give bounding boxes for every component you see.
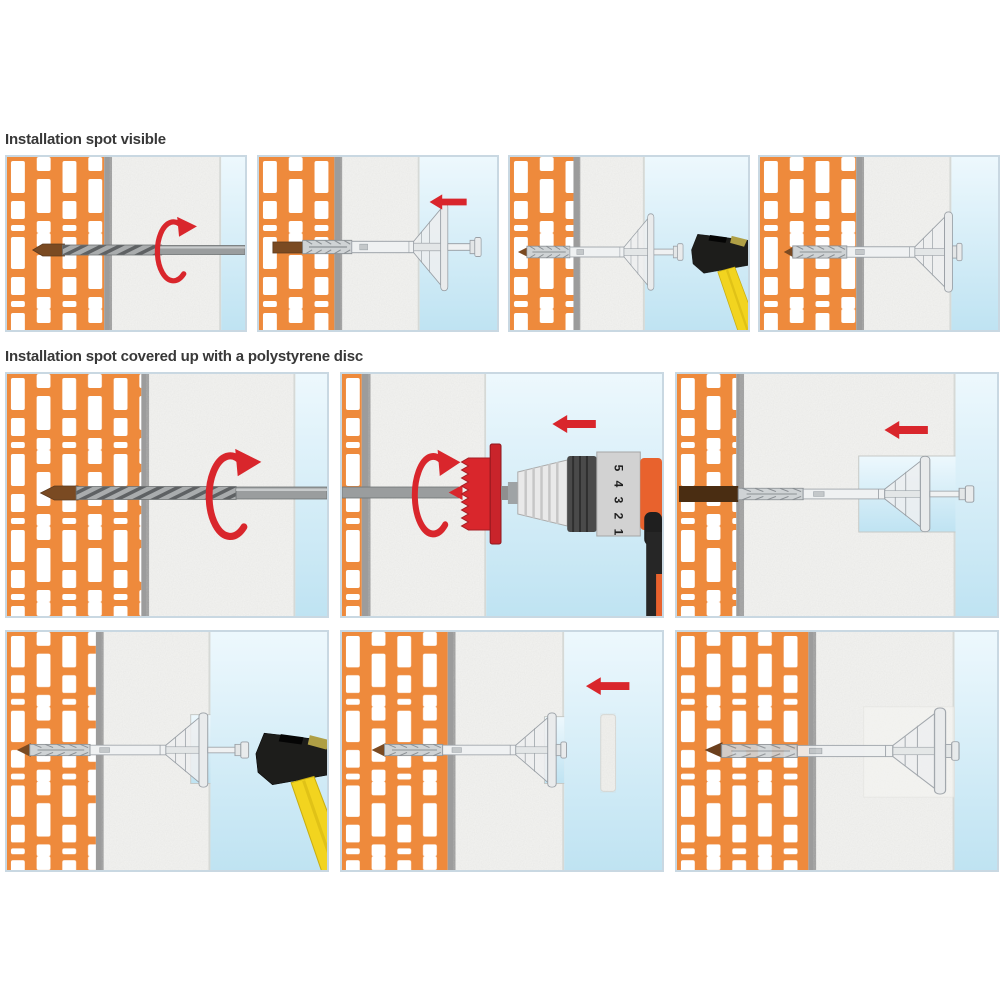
drilled-hole xyxy=(273,242,307,253)
adhesive-layer xyxy=(856,157,864,330)
scene-hammer-pin xyxy=(510,157,748,330)
scene-finished-covered xyxy=(677,632,997,870)
scene-insert-recessed xyxy=(677,374,997,616)
scene-hammer-recessed xyxy=(7,632,327,870)
brick-wall xyxy=(510,157,573,330)
insulation-board xyxy=(112,157,221,330)
cutter-guide-rod xyxy=(342,487,459,498)
clutch-number: 1 xyxy=(612,529,626,536)
air-gap xyxy=(955,632,997,870)
panel-insert-anchor-recessed xyxy=(675,372,999,618)
scene-cover-disc xyxy=(342,632,662,870)
section-title-visible: Installation spot visible xyxy=(5,131,166,148)
panel-drill-anchor-hole xyxy=(5,155,247,332)
clutch-number: 5 xyxy=(612,465,626,472)
scene-mill-recess: 5 4 3 2 1 xyxy=(342,374,662,616)
panel-mill-recess: 5 4 3 2 1 xyxy=(340,372,664,618)
clutch-number: 3 xyxy=(612,497,626,504)
clutch-number: 4 xyxy=(612,481,626,488)
brick-wall xyxy=(7,157,104,330)
drill-bit xyxy=(33,244,245,256)
clutch-number: 2 xyxy=(612,513,626,520)
section-title-covered: Installation spot covered up with a poly… xyxy=(5,348,363,365)
scene-anchor-installed xyxy=(760,157,998,330)
drill-bit xyxy=(41,486,327,500)
panel-cover-with-disc xyxy=(340,630,664,872)
panel-drill-anchor-hole-2 xyxy=(5,372,329,618)
installation-instruction-sheet: Installation spot visible xyxy=(0,0,1000,1000)
polystyrene-disc xyxy=(601,715,616,792)
panel-finished-covered xyxy=(675,630,999,872)
scene-drill-hole-large xyxy=(7,374,327,616)
panel-hammer-pin-recessed xyxy=(5,630,329,872)
drilled-hole xyxy=(679,486,738,502)
scene-drill-hole xyxy=(7,157,245,330)
panel-anchor-installed xyxy=(758,155,1000,332)
panel-hammer-pin xyxy=(508,155,750,332)
adhesive-layer xyxy=(573,157,580,330)
brick-wall xyxy=(760,157,856,330)
scene-insert-anchor xyxy=(259,157,497,330)
adhesive-layer xyxy=(104,157,112,330)
panel-insert-anchor xyxy=(257,155,499,332)
air-gap xyxy=(221,157,245,330)
